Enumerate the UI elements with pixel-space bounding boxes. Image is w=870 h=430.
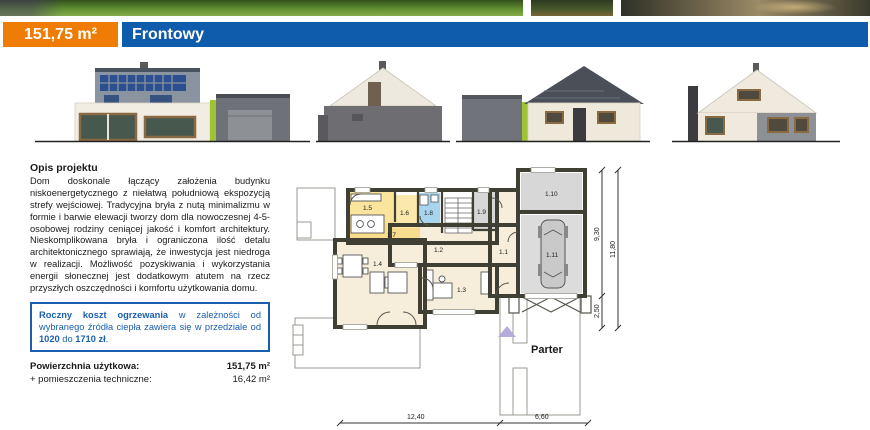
catalog-page: 151,75 m² Frontowy: [0, 0, 870, 430]
page-title: Frontowy: [132, 26, 204, 44]
dim-depth-front: 2,50: [594, 304, 601, 318]
elevation-side-right: [672, 63, 840, 142]
heating-cost-box: Roczny koszt ogrzewania w zależności od …: [30, 302, 270, 352]
area-badge-label: 151,75 m²: [24, 26, 97, 44]
elevation-side-left: [316, 61, 450, 142]
room-label-1-2: 1.2: [434, 247, 443, 254]
area-row-value: 151,75 m²: [208, 361, 270, 374]
heating-cost-lead: Roczny koszt ogrzewania: [39, 310, 168, 320]
room-label-1-10: 1.10: [545, 191, 558, 198]
floor-plan: 1.1 1.2 1.3 1.4 1.5 1.6 1.7 1.8 1.9 1.10…: [285, 160, 665, 430]
room-label-1-7: 1.7: [387, 232, 396, 239]
areas-table: Powierzchnia użytkowa: 151,75 m² + pomie…: [30, 361, 270, 387]
dim-depth-total: 11,80: [610, 241, 617, 258]
photo-hedge: [531, 0, 613, 16]
description-body: Dom doskonale łączący założenia budynku …: [30, 176, 270, 295]
room-label-1-5: 1.5: [363, 205, 372, 212]
elevation-drawings: [0, 58, 870, 160]
room-label-1-8: 1.8: [424, 210, 433, 217]
area-row-label: + pomieszczenia techniczne:: [30, 374, 208, 387]
heating-cost-max: 1710 zł: [75, 334, 106, 344]
room-label-1-11: 1.11: [546, 252, 559, 259]
stairs: [445, 198, 472, 233]
dim-depth-main: 9,30: [594, 227, 601, 241]
heating-cost-sep: do: [60, 334, 76, 344]
elevation-front: [35, 62, 310, 142]
room-label-1-1: 1.1: [499, 249, 508, 256]
floor-label: Parter: [531, 344, 564, 356]
description-heading: Opis projektu: [30, 162, 270, 174]
left-column: Opis projektu Dom doskonale łączący zało…: [30, 162, 270, 387]
photo-garden: [0, 0, 523, 16]
heating-cost-min: 1020: [39, 334, 60, 344]
sofa-set: [370, 272, 407, 293]
area-row-label: Powierzchnia użytkowa:: [30, 361, 208, 374]
photo-house-path: [621, 0, 870, 16]
elevation-rear: [456, 66, 650, 142]
heating-cost-dot: .: [106, 334, 109, 344]
area-badge: 151,75 m²: [3, 22, 118, 47]
area-row-technical: + pomieszczenia techniczne: 16,42 m²: [30, 374, 270, 387]
room-label-1-6: 1.6: [400, 210, 409, 217]
area-row-usable: Powierzchnia użytkowa: 151,75 m²: [30, 361, 270, 374]
room-label-1-9: 1.9: [477, 209, 486, 216]
room-label-1-3: 1.3: [457, 287, 466, 294]
title-bar: Frontowy: [122, 22, 868, 47]
room-label-1-4: 1.4: [373, 261, 382, 268]
dim-main-width: 12,40: [407, 414, 425, 421]
dim-garage-width: 6,60: [535, 414, 549, 421]
area-row-value: 16,42 m²: [208, 374, 270, 387]
